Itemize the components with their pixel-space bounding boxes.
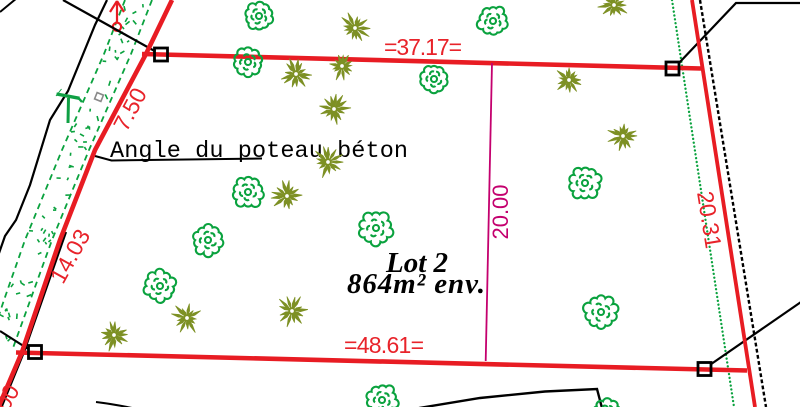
svg-text:=48.61=: =48.61= bbox=[344, 332, 424, 358]
svg-text:=37.17=: =37.17= bbox=[384, 34, 462, 60]
svg-text:Angle du poteau béton: Angle du poteau béton bbox=[110, 138, 408, 165]
svg-text:20.00: 20.00 bbox=[488, 184, 513, 239]
svg-text:864m² env.: 864m² env. bbox=[347, 268, 485, 300]
